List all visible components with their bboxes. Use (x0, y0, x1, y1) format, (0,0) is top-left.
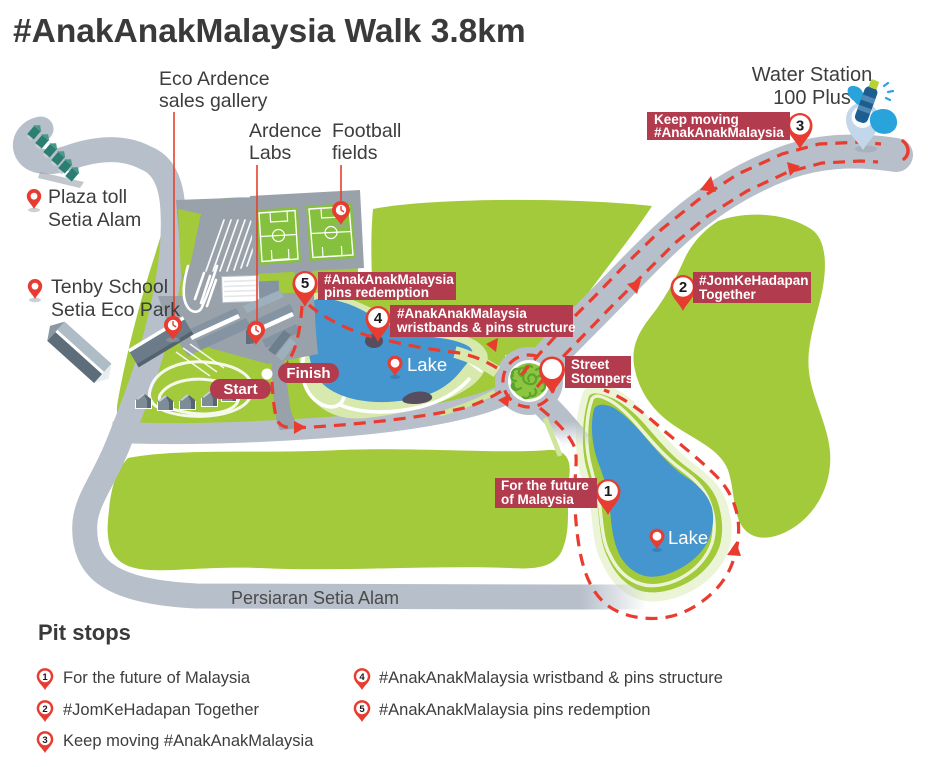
svg-text:Lake: Lake (407, 354, 447, 375)
svg-text:Eco Ardence: Eco Ardence (159, 68, 270, 90)
svg-text:of Malaysia: of Malaysia (501, 492, 574, 507)
svg-text:For the future of Malaysia: For the future of Malaysia (63, 669, 251, 687)
svg-text:fields: fields (332, 142, 378, 164)
svg-text:Keep moving #AnakAnakMalaysia: Keep moving #AnakAnakMalaysia (63, 732, 314, 750)
svg-text:Persiaran Setia Alam: Persiaran Setia Alam (231, 588, 399, 608)
svg-text:Plaza toll: Plaza toll (48, 186, 127, 208)
svg-text:Setia Alam: Setia Alam (48, 209, 141, 231)
svg-text:Tenby School: Tenby School (51, 276, 168, 298)
svg-text:1: 1 (604, 483, 612, 500)
svg-text:#AnakAnakMalaysia pins redempt: #AnakAnakMalaysia pins redemption (379, 701, 651, 719)
svg-text:Water Station: Water Station (752, 64, 872, 86)
svg-text:5: 5 (301, 275, 309, 292)
svg-text:wristbands & pins structure: wristbands & pins structure (396, 320, 576, 335)
svg-text:1: 1 (42, 672, 48, 683)
svg-text:pins redemption: pins redemption (324, 285, 429, 300)
svg-text:For the future: For the future (501, 478, 589, 493)
svg-text:#AnakAnakMalaysia Walk 3.8km: #AnakAnakMalaysia Walk 3.8km (13, 13, 526, 50)
svg-text:5: 5 (359, 704, 365, 715)
svg-text:Labs: Labs (249, 142, 292, 164)
svg-text:Stompers: Stompers (571, 371, 633, 386)
svg-text:Finish: Finish (286, 365, 330, 382)
svg-text:4: 4 (359, 672, 365, 683)
svg-text:3: 3 (42, 735, 47, 746)
svg-text:4: 4 (374, 310, 383, 327)
svg-text:Football: Football (332, 120, 401, 142)
svg-text:#JomKeHadapan: #JomKeHadapan (699, 273, 809, 288)
svg-text:Pit stops: Pit stops (38, 620, 131, 645)
svg-text:#AnakAnakMalaysia: #AnakAnakMalaysia (654, 125, 784, 140)
svg-text:3: 3 (796, 118, 804, 135)
svg-text:2: 2 (42, 704, 47, 715)
svg-text:Lake: Lake (668, 527, 708, 548)
svg-text:#AnakAnakMalaysia wristband &: #AnakAnakMalaysia wristband & pins struc… (379, 669, 723, 687)
svg-text:Start: Start (223, 381, 257, 398)
svg-text:#AnakAnakMalaysia: #AnakAnakMalaysia (397, 306, 527, 321)
svg-text:#JomKeHadapan Together: #JomKeHadapan Together (63, 701, 260, 719)
svg-text:Street: Street (571, 357, 610, 372)
svg-text:Ardence: Ardence (249, 120, 322, 142)
svg-text:Together: Together (699, 287, 756, 302)
svg-text:100 Plus: 100 Plus (773, 87, 851, 109)
svg-text:2: 2 (679, 279, 687, 296)
svg-text:sales gallery: sales gallery (159, 90, 268, 112)
svg-text:Setia Eco Park: Setia Eco Park (51, 299, 180, 321)
